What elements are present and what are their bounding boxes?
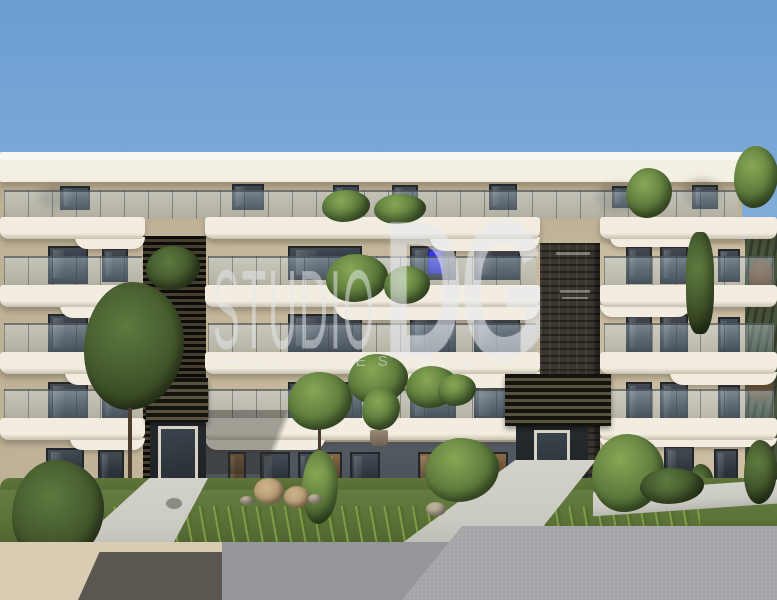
side-table: [240, 496, 254, 505]
balcony-band: [600, 352, 777, 374]
balcony-wave: [670, 372, 777, 385]
balcony-wave: [610, 237, 700, 247]
glass-railing: [604, 389, 774, 418]
garden-stone: [166, 498, 182, 509]
balcony-band: [600, 217, 777, 239]
balcony-wave: [430, 237, 540, 251]
glass-railing: [4, 256, 142, 285]
foreground-wall-gray-near: [402, 526, 777, 600]
brick-detail: [562, 297, 588, 299]
balcony-band: [0, 418, 145, 440]
tree-trunk: [128, 408, 132, 478]
balcony-band: [205, 217, 540, 239]
balcony-wave: [70, 438, 145, 450]
brick-detail: [556, 252, 590, 255]
rendering-scene: STUDIO DG REAL ESTATE: [0, 0, 777, 600]
glass-railing: [604, 323, 774, 352]
balcony-wave: [335, 305, 540, 320]
wicker-chair: [254, 478, 284, 504]
balcony-wave: [600, 305, 690, 317]
climbing-vine: [686, 232, 714, 334]
plant-pot: [370, 430, 388, 446]
wall-shadow: [78, 552, 232, 600]
wicker-chair: [284, 486, 310, 508]
glass-railing: [208, 323, 536, 352]
side-table: [308, 494, 322, 504]
garden-pouf: [426, 502, 446, 516]
brick-detail: [560, 290, 590, 293]
entrance-canopy: [505, 374, 611, 426]
balcony-wave: [75, 237, 145, 249]
balcony-band: [0, 217, 145, 239]
